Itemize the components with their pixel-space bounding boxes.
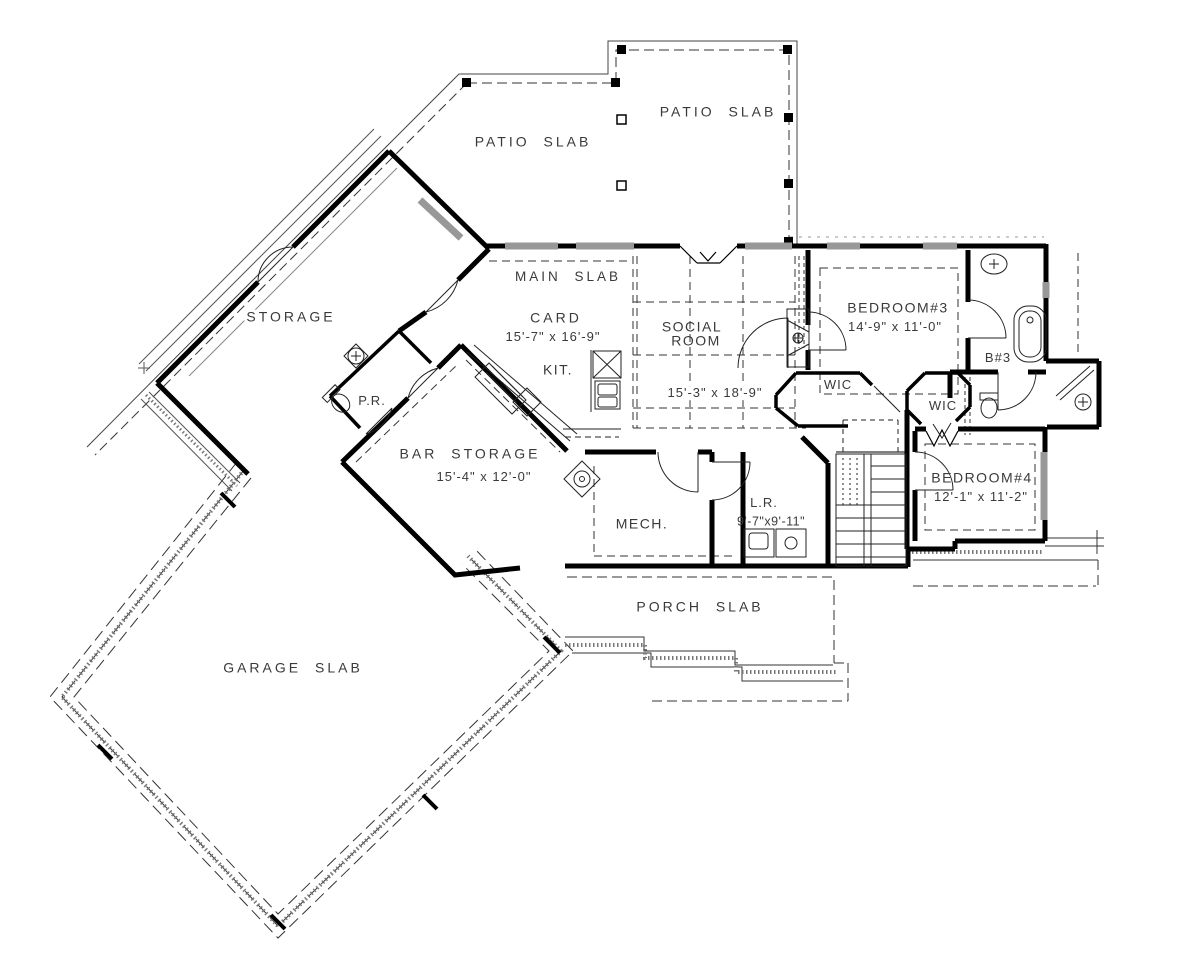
label-bedroom4: BEDROOM#4 xyxy=(929,471,1034,486)
porch-slab-outline xyxy=(565,530,1104,701)
label-bedroom3-dims: 14'-9" x 11'-0" xyxy=(846,320,944,334)
label-patio-slab-right: PATIO SLAB xyxy=(658,105,779,120)
door-arcs xyxy=(258,247,1036,500)
stairs xyxy=(836,420,906,566)
label-bar-storage-dims: 15'-4" x 12'-0" xyxy=(435,470,534,484)
floor-plan: PATIO SLAB PATIO SLAB MAIN SLAB STORAGE … xyxy=(0,0,1200,960)
label-laundry: L.R. xyxy=(748,496,780,510)
label-powder-room: P.R. xyxy=(356,394,388,408)
laundry-appliances xyxy=(744,529,806,557)
interior-walls xyxy=(330,331,970,452)
label-mech: MECH. xyxy=(614,517,671,532)
label-social-line2: ROOM xyxy=(669,334,723,349)
label-bath3: B#3 xyxy=(983,351,1013,365)
label-laundry-dims: 9'-7"x9'-11" xyxy=(735,515,807,528)
label-bedroom3: BEDROOM#3 xyxy=(845,301,950,316)
label-garage-slab: GARAGE SLAB xyxy=(221,661,365,676)
label-card-dims: 15'-7" x 16'-9" xyxy=(504,330,603,344)
label-bar-storage: BAR STORAGE xyxy=(398,447,543,462)
label-bedroom4-dims: 12'-1" x 11'-2" xyxy=(932,490,1030,504)
label-patio-slab-left: PATIO SLAB xyxy=(473,135,594,150)
label-wic-a: WIC xyxy=(822,378,854,392)
walls xyxy=(157,151,1099,575)
label-storage: STORAGE xyxy=(244,310,337,325)
label-card: CARD xyxy=(528,311,584,326)
label-kitchen: KIT. xyxy=(541,363,575,378)
label-porch-slab: PORCH SLAB xyxy=(634,600,765,615)
label-wic-b: WIC xyxy=(927,399,959,413)
bar-sink xyxy=(564,461,600,497)
label-main-slab: MAIN SLAB xyxy=(513,270,623,284)
bath3-fixtures xyxy=(980,254,1094,418)
label-social-dims: 15'-3" x 18'-9" xyxy=(666,386,765,400)
garage-slab-outline xyxy=(50,462,573,938)
